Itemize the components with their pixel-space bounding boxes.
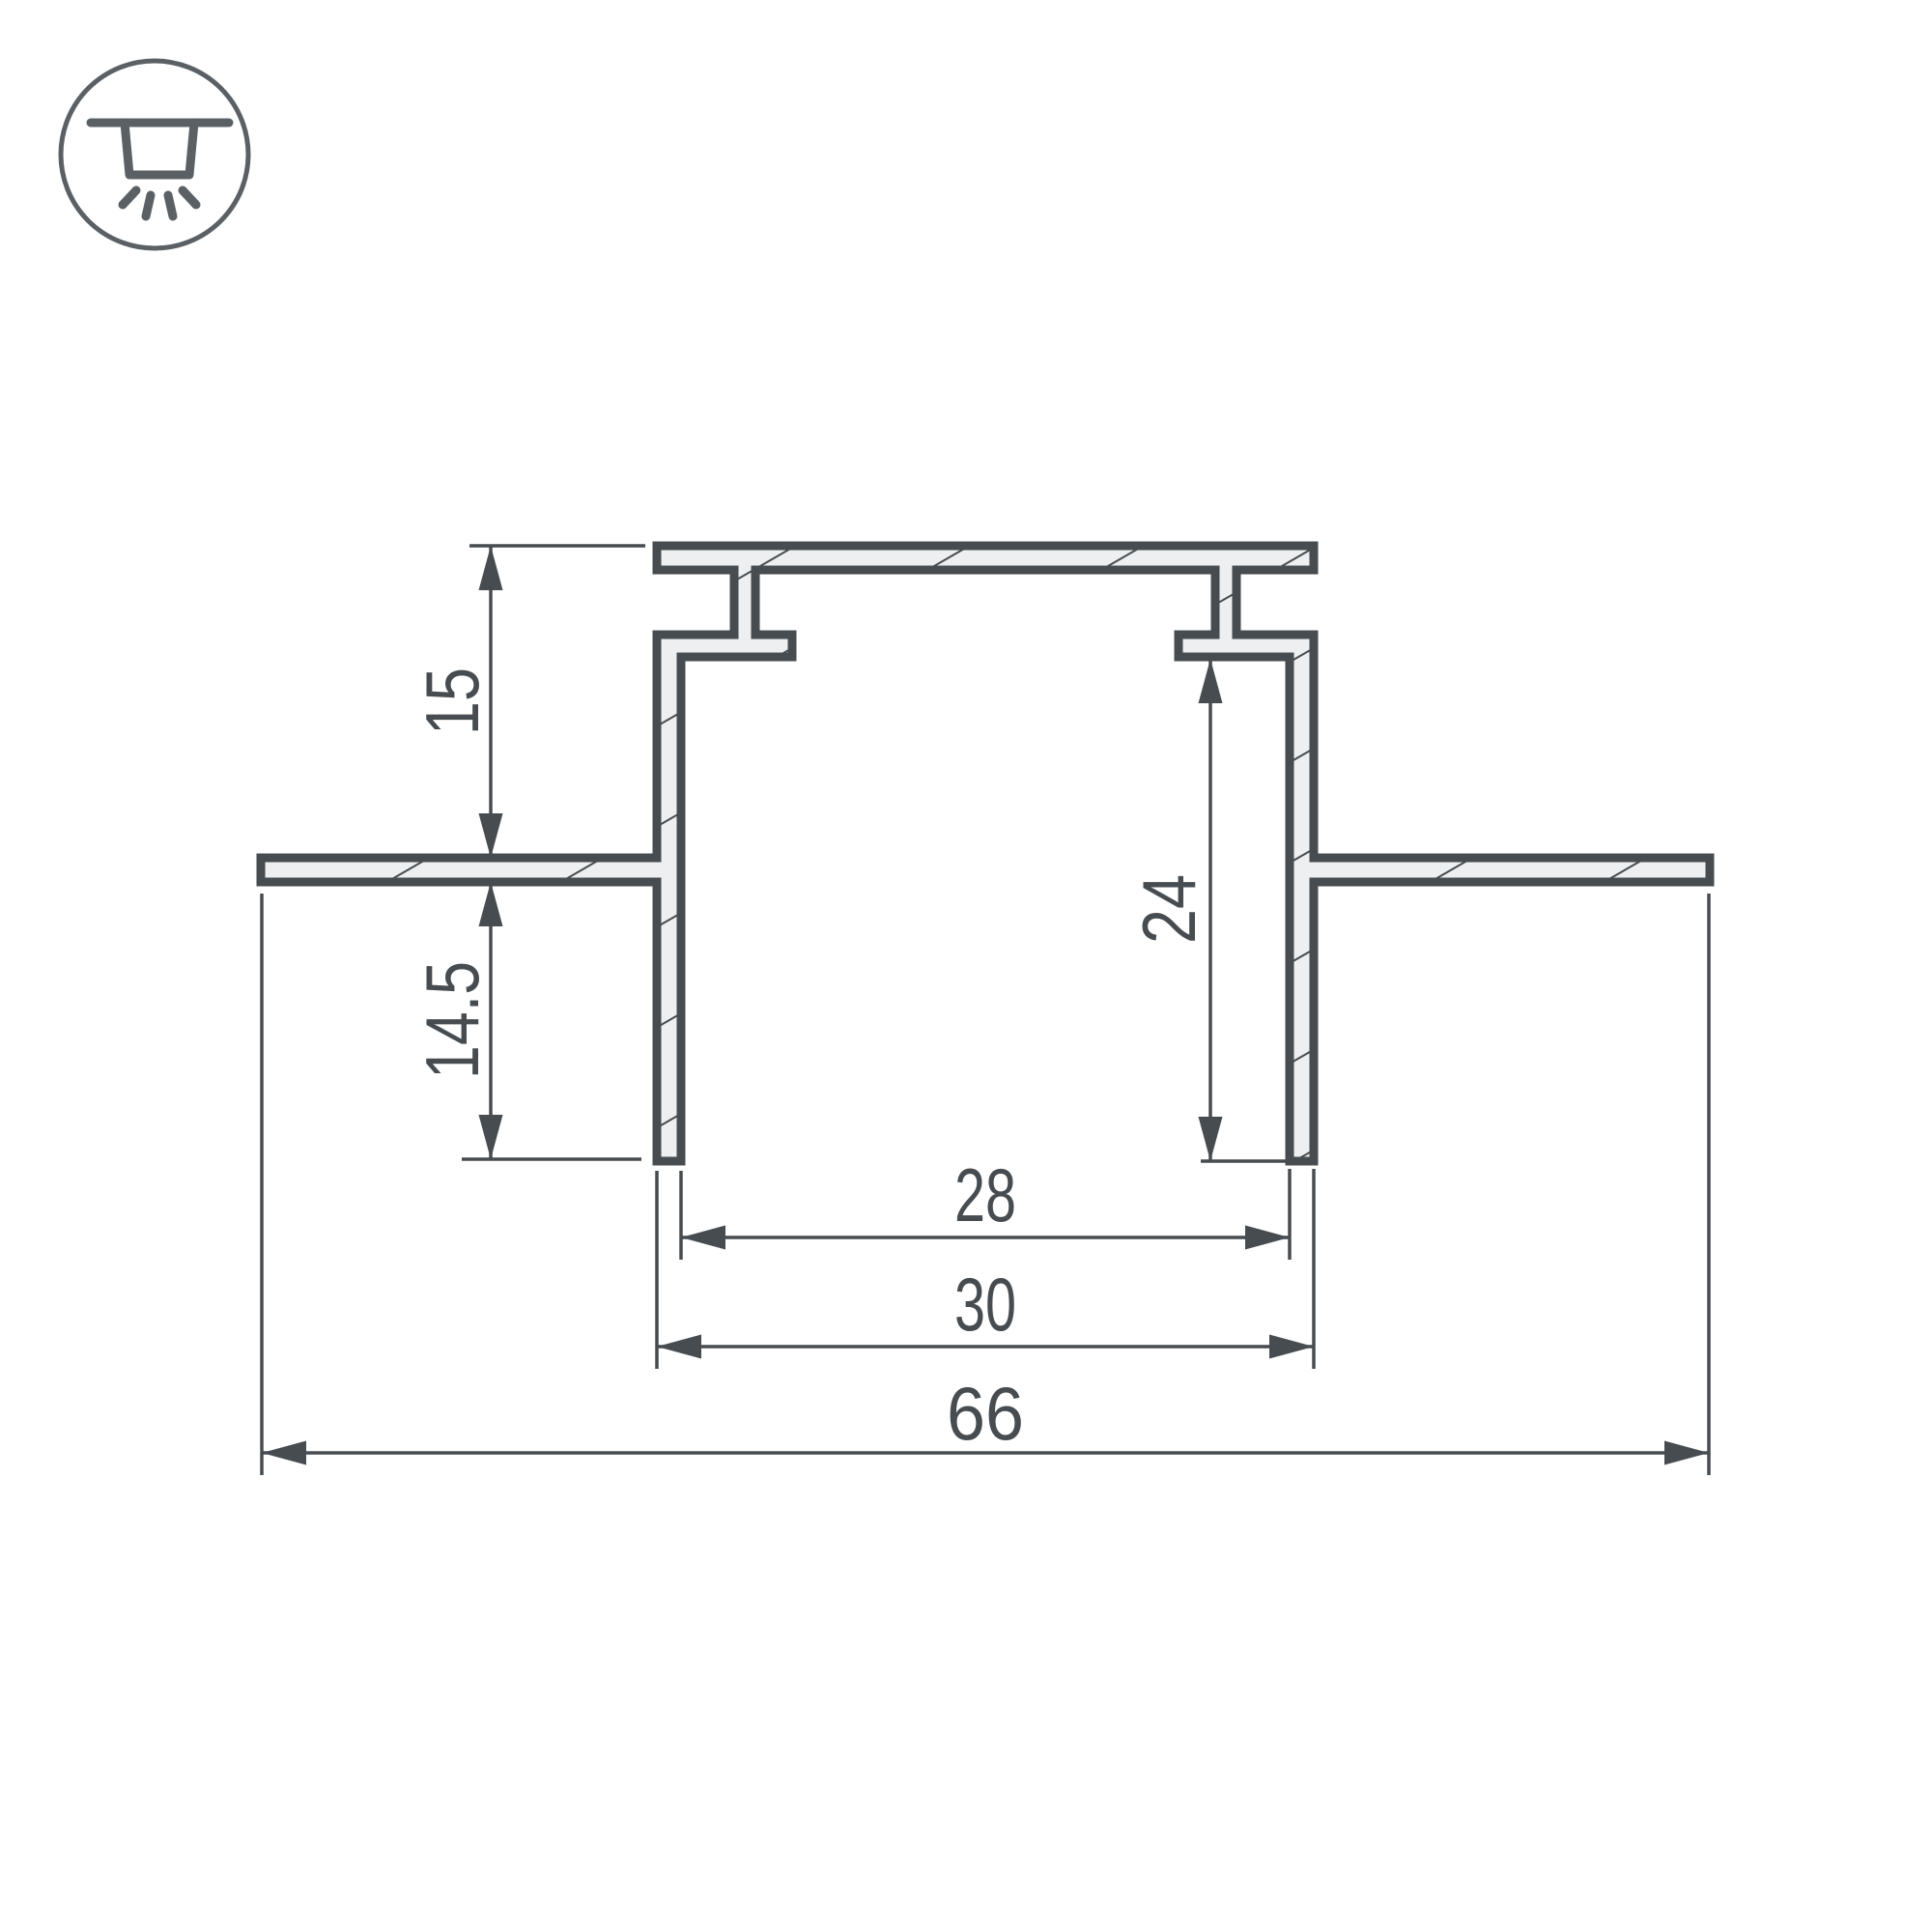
arrow-right-icon: [1269, 1335, 1314, 1359]
arrow-down-icon: [479, 813, 503, 858]
dimension-top-height: 15: [410, 546, 645, 858]
dimension-inner-height: 24: [1126, 659, 1286, 1161]
profile-dimension-drawing: 15 14.5 24 28 30: [0, 0, 1932, 1932]
arrow-right-icon: [1245, 1226, 1290, 1250]
icon-ray-2: [146, 195, 151, 216]
dimension-label: 28: [954, 1152, 1016, 1237]
drawing-canvas: 15 14.5 24 28 30: [0, 0, 1932, 1932]
arrow-up-icon: [479, 546, 503, 590]
arrow-right-icon: [1664, 1441, 1709, 1465]
arrow-up-icon: [1199, 659, 1223, 703]
dimension-label: 66: [947, 1371, 1024, 1456]
icon-ray-1: [123, 190, 136, 205]
icon-ray-4: [183, 190, 196, 205]
arrow-left-icon: [657, 1335, 701, 1359]
arrow-down-icon: [1199, 1117, 1223, 1161]
arrow-up-icon: [479, 882, 503, 926]
icon-recessed-box: [125, 123, 194, 175]
arrow-left-icon: [681, 1226, 725, 1250]
dimension-inner-width: 28: [681, 1152, 1290, 1260]
dimension-label: 15: [410, 668, 495, 735]
arrow-down-icon: [479, 1115, 503, 1159]
icon-circle: [61, 61, 248, 248]
recessed-light-icon: [61, 61, 248, 248]
dimension-recess-depth: 14.5: [410, 882, 641, 1159]
icon-ray-3: [168, 195, 173, 216]
dimension-label: 14.5: [410, 961, 495, 1079]
dimension-label: 30: [954, 1262, 1016, 1347]
icon-light-rays: [123, 190, 196, 216]
arrow-left-icon: [262, 1441, 306, 1465]
dimension-label: 24: [1126, 874, 1211, 944]
